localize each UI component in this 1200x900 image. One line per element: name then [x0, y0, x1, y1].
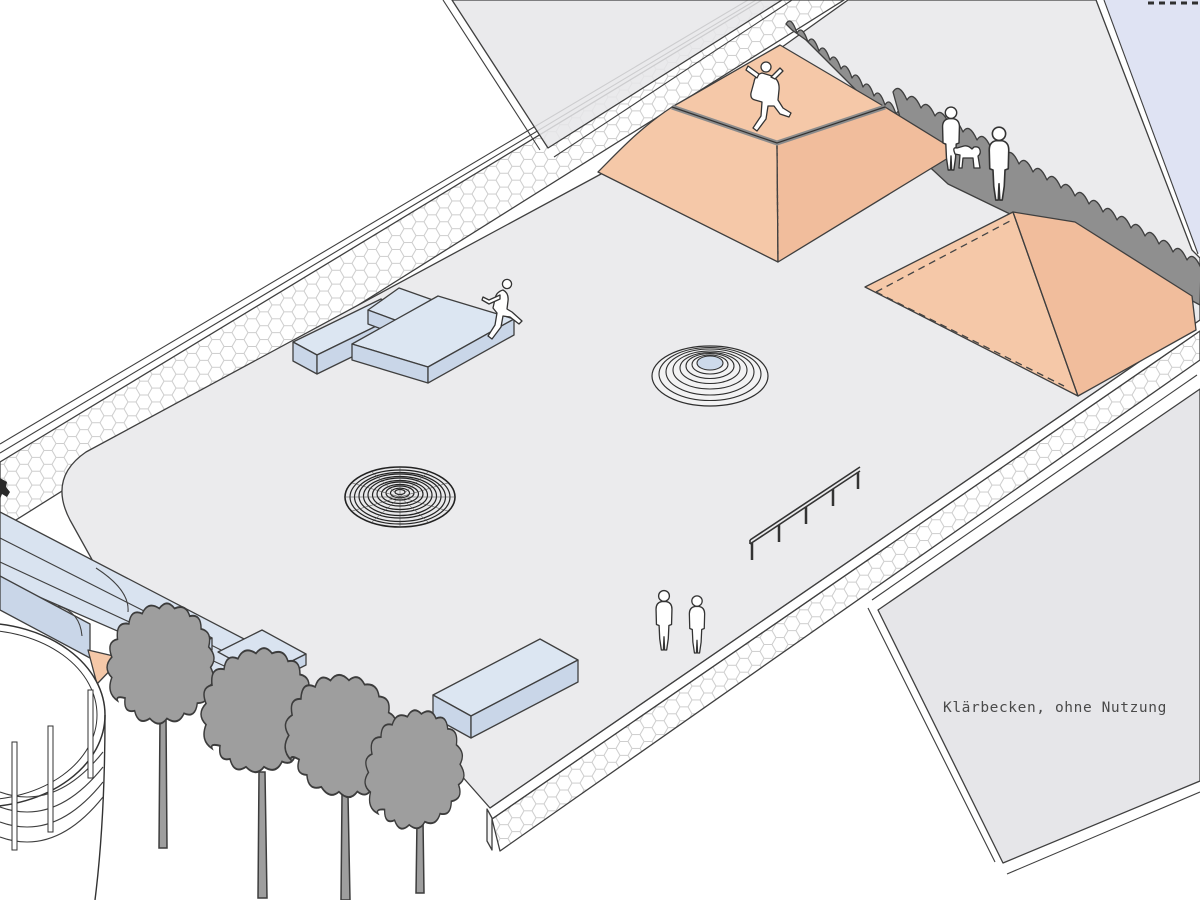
tree-trunk-2	[258, 772, 267, 898]
railing-post-2	[88, 690, 93, 778]
railing-post-1	[48, 726, 53, 832]
tree-trunk-1	[159, 716, 167, 848]
wall-south-end-cap	[487, 809, 492, 850]
dome-top-disc	[697, 356, 723, 370]
railing-post-3	[12, 742, 17, 850]
dome-feature	[652, 346, 768, 406]
clarifier-tank	[0, 623, 105, 900]
bowl-feature	[345, 467, 455, 527]
tree-trunk-3	[341, 795, 350, 900]
basin-label: Klärbecken, ohne Nutzung	[943, 700, 1167, 716]
skatepark-axonometric-illustration: Klärbecken, ohne Nutzung	[0, 0, 1200, 900]
tree-trunk-4	[416, 820, 424, 893]
